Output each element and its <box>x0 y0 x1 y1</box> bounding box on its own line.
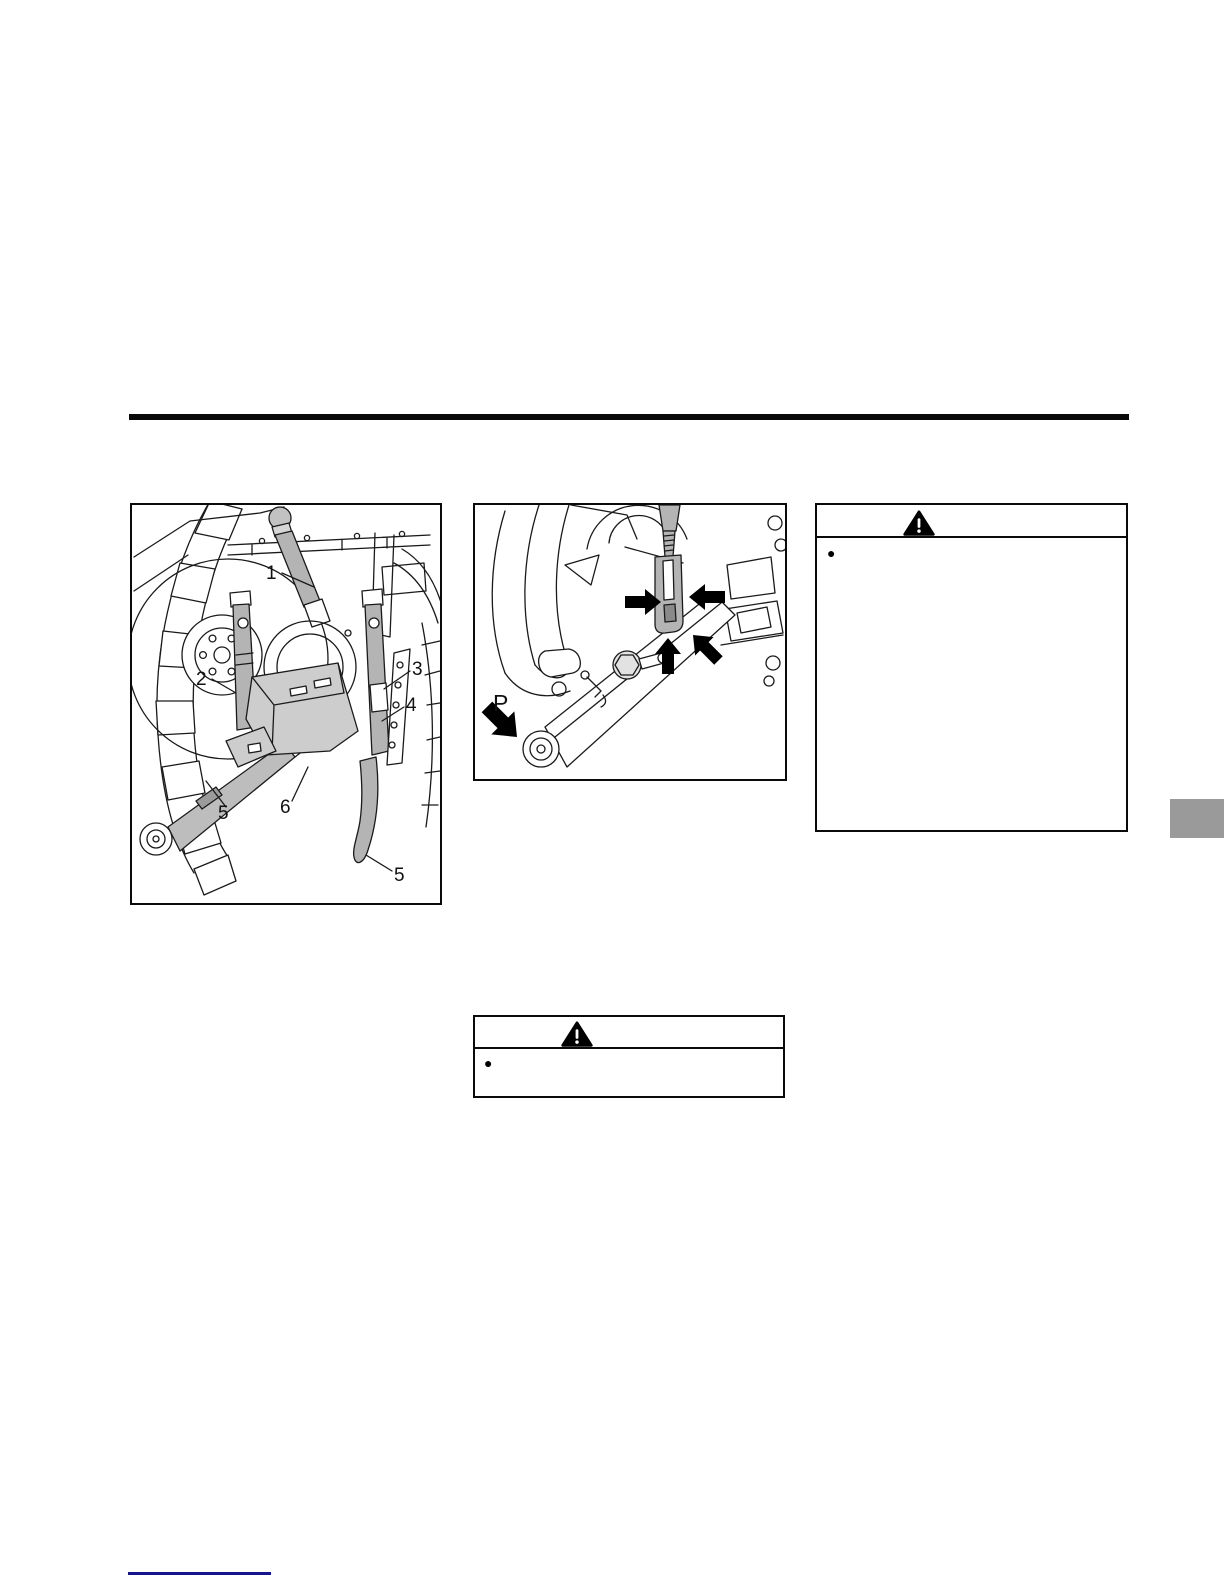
right-lift-rod <box>354 589 389 863</box>
callout-5-right: 5 <box>394 865 405 886</box>
warning-box-right: ● <box>815 503 1128 832</box>
callout-6: 6 <box>280 797 291 818</box>
figure-lower-link-closeup-frame: P <box>473 503 787 781</box>
figure-hitch-overview-frame: 1 2 3 4 5 6 5 <box>130 503 442 905</box>
drawbar-frame <box>721 516 785 686</box>
warning-triangle-icon <box>903 510 935 537</box>
hitch-overview-illustration: 1 2 3 4 5 6 5 <box>132 505 440 903</box>
warning-triangle-icon <box>561 1021 593 1048</box>
callout-5-left: 5 <box>218 803 229 824</box>
warning-body: ● <box>817 538 1126 830</box>
footer-link-underline[interactable] <box>128 1572 271 1575</box>
callout-2: 2 <box>196 669 207 690</box>
bullet-marker: ● <box>827 548 835 558</box>
warning-box-middle: ● <box>473 1015 785 1098</box>
manual-page: 1 2 3 4 5 6 5 <box>0 0 1224 1584</box>
warning-header <box>817 505 1126 538</box>
callout-3: 3 <box>412 659 423 680</box>
callout-1: 1 <box>266 563 277 584</box>
section-rule <box>129 414 1129 420</box>
bullet-marker: ● <box>484 1058 492 1068</box>
warning-body: ● <box>475 1049 783 1094</box>
callout-4: 4 <box>406 695 417 716</box>
warning-header <box>475 1017 783 1049</box>
top-link <box>269 507 330 627</box>
lower-link <box>523 593 735 767</box>
lower-link-closeup-illustration: P <box>475 505 785 779</box>
section-thumb-tab <box>1170 799 1224 838</box>
point-p-label: P <box>493 690 508 716</box>
